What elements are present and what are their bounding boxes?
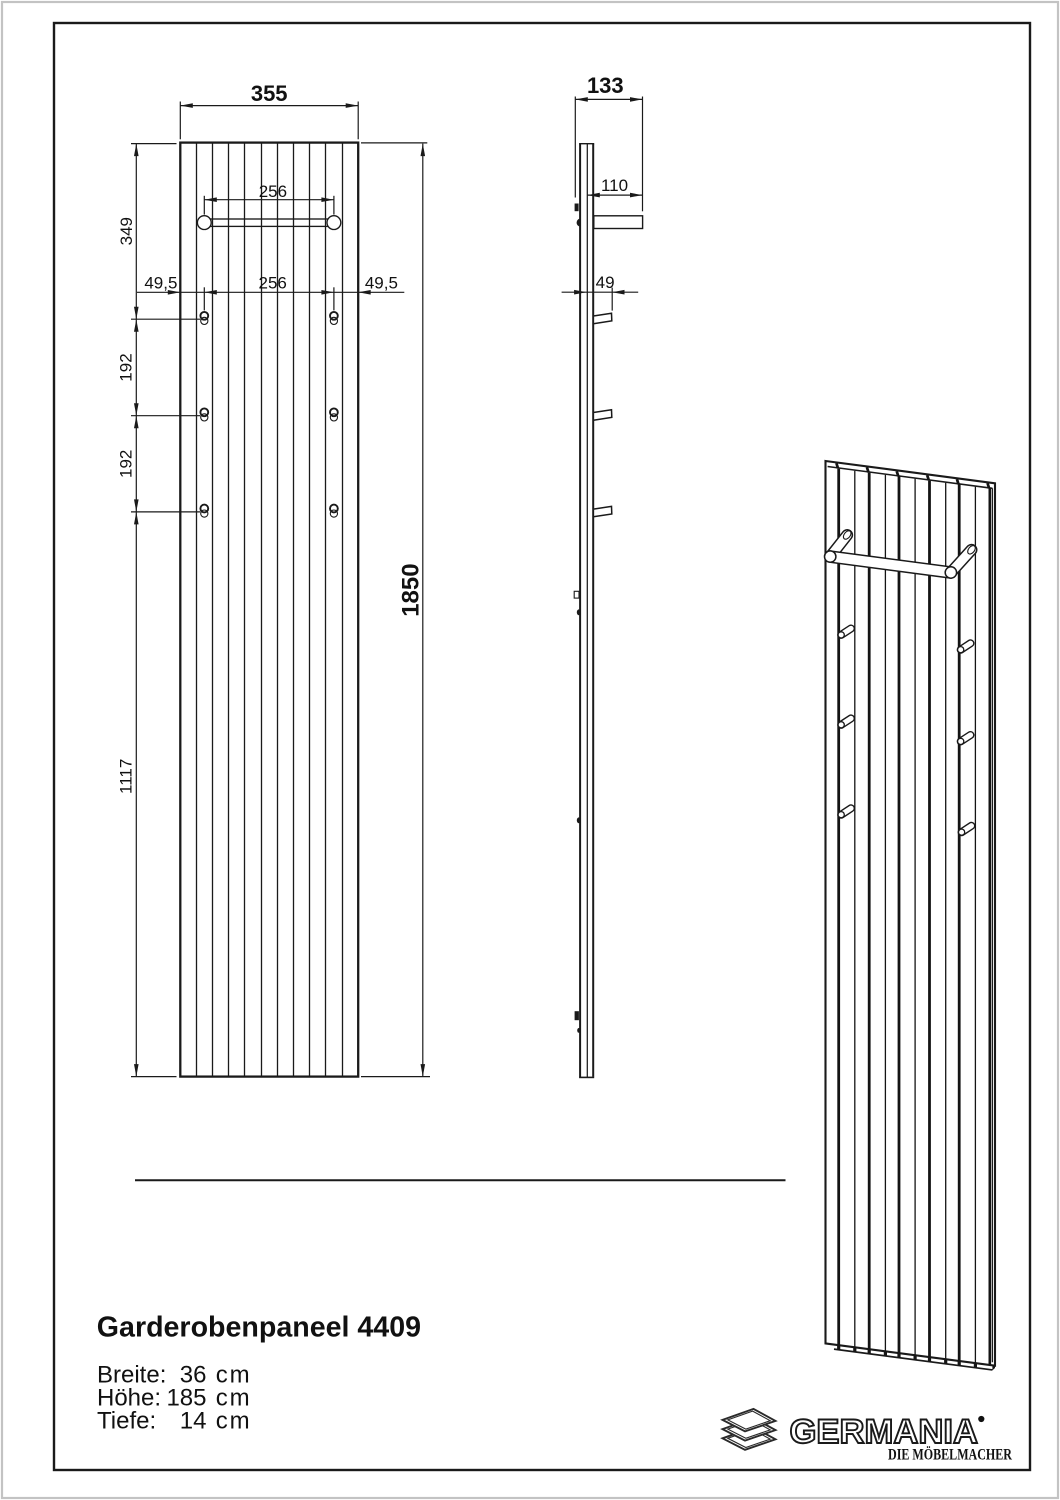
svg-text:192: 192 (116, 450, 135, 478)
svg-text:1850: 1850 (398, 563, 425, 616)
svg-text:Garderobenpaneel 4409: Garderobenpaneel 4409 (97, 1311, 421, 1343)
svg-text:Tiefe:: Tiefe: (97, 1408, 156, 1435)
svg-text:14: 14 (180, 1408, 207, 1435)
svg-text:110: 110 (601, 176, 628, 195)
svg-text:cm: cm (216, 1408, 258, 1435)
svg-text:1117: 1117 (116, 759, 135, 794)
svg-text:DIE MÖBELMACHER: DIE MÖBELMACHER (888, 1447, 1013, 1464)
svg-text:49: 49 (596, 273, 615, 292)
svg-text:49,5: 49,5 (365, 274, 398, 293)
svg-text:192: 192 (116, 353, 135, 381)
svg-text:256: 256 (259, 182, 287, 201)
svg-text:355: 355 (251, 81, 288, 106)
svg-text:GERMANIA: GERMANIA (790, 1413, 979, 1451)
svg-text:256: 256 (259, 274, 287, 293)
svg-text:133: 133 (587, 73, 624, 98)
svg-text:349: 349 (117, 217, 136, 245)
svg-text:49,5: 49,5 (144, 274, 177, 293)
